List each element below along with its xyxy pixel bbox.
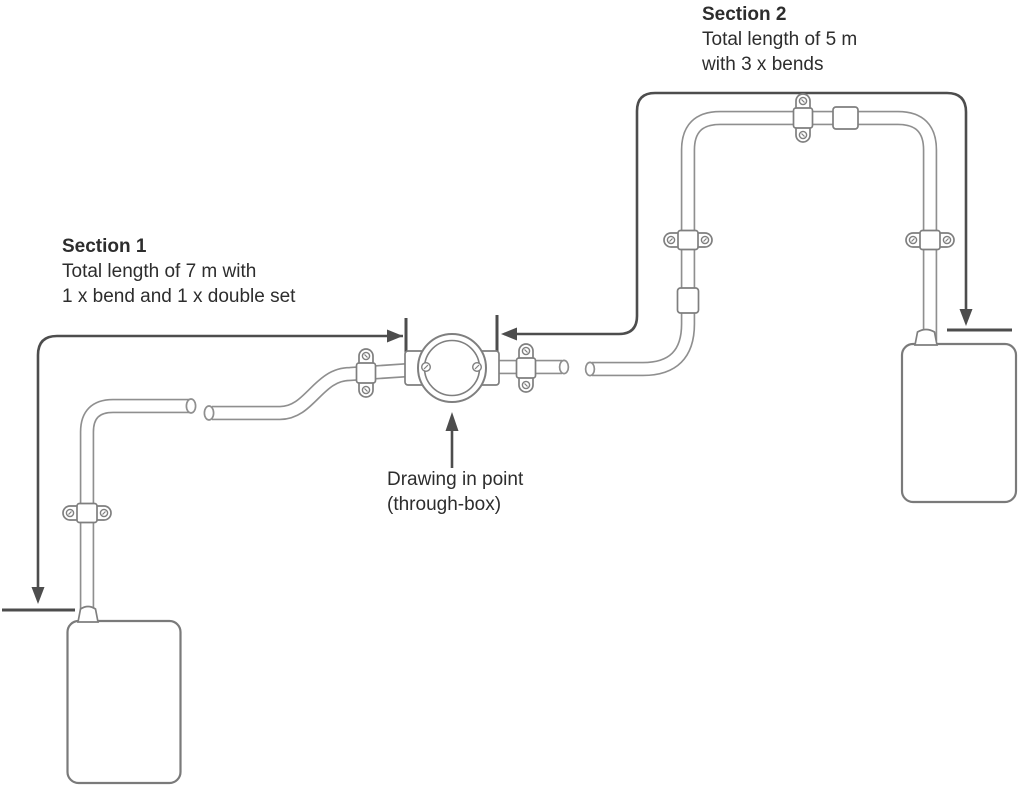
saddle-clip — [517, 344, 536, 392]
conduit-coupling — [833, 107, 858, 129]
section1-arrowhead-right-icon — [387, 330, 403, 343]
pipe-open-end — [204, 406, 213, 420]
enclosure-box-left — [68, 607, 181, 784]
saddle-clip — [664, 231, 712, 250]
saddle-clip — [63, 504, 111, 523]
diagram-artwork — [0, 0, 1024, 791]
conduit-coupling — [678, 288, 699, 313]
conduit-section2-run — [592, 118, 930, 369]
callout-arrowhead-up-icon — [446, 412, 459, 431]
saddle-clip — [906, 231, 954, 250]
enclosure-box-right-body — [902, 344, 1016, 502]
section2-arrowhead-left-icon — [501, 328, 517, 341]
section2-dimension-line — [504, 93, 966, 334]
conduit-installation-diagram: Section 1 Total length of 7 m with 1 x b… — [0, 0, 1024, 791]
pipe-open-end — [586, 362, 595, 375]
section1-arrowhead-down-icon — [32, 587, 45, 604]
through-box — [405, 334, 499, 402]
enclosure-box-left-spout — [78, 607, 98, 623]
section1-dimension-indicator — [2, 318, 406, 610]
drawing-in-point-callout-arrow — [446, 412, 459, 468]
drawing-in-point-line1: Drawing in point — [387, 467, 523, 492]
section2-detail-line1: Total length of 5 m — [702, 27, 857, 52]
pipe-open-end — [560, 360, 569, 373]
enclosure-box-left-body — [68, 621, 181, 783]
enclosure-box-right-spout — [915, 330, 937, 346]
conduit-section1-double-set — [212, 370, 410, 413]
section1-detail-line1: Total length of 7 m with — [62, 259, 295, 284]
saddle-clip — [794, 94, 813, 142]
pipe-open-end — [186, 399, 195, 413]
drawing-in-point-line2: (through-box) — [387, 492, 523, 517]
section1-title: Section 1 — [62, 234, 295, 259]
section2-arrowhead-down-icon — [960, 309, 973, 326]
enclosure-box-right — [902, 330, 1016, 503]
saddle-clip — [357, 349, 376, 397]
drawing-in-point-label: Drawing in point (through-box) — [387, 467, 523, 517]
section2-title: Section 2 — [702, 2, 857, 27]
section1-label: Section 1 Total length of 7 m with 1 x b… — [62, 234, 295, 309]
section2-detail-line2: with 3 x bends — [702, 52, 857, 77]
section2-label: Section 2 Total length of 5 m with 3 x b… — [702, 2, 857, 77]
section1-detail-line2: 1 x bend and 1 x double set — [62, 284, 295, 309]
